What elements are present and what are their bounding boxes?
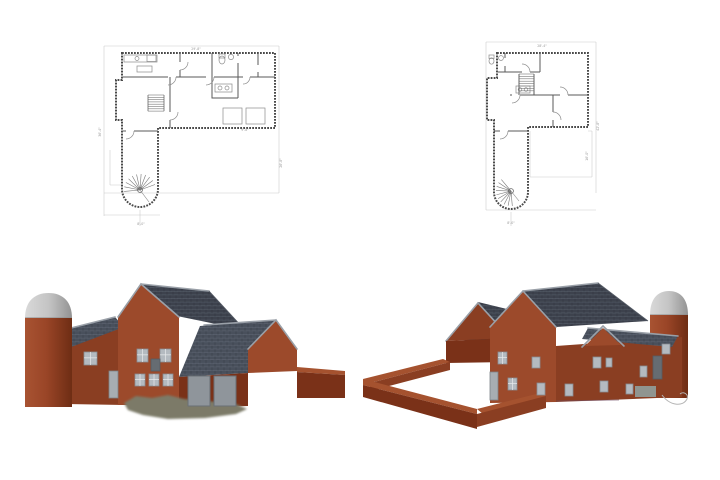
bathroom-fixtures [215, 54, 234, 92]
window [600, 381, 608, 392]
dimension-label: 26'-8" [279, 158, 283, 168]
window [626, 384, 633, 394]
cad-sheet: 29'-8"36'-4"26'-8"8'-0"9'-8" 28'-4"42'-8… [0, 0, 720, 480]
door [109, 371, 118, 398]
stoop [635, 386, 656, 397]
viewport-first-floor-plan[interactable]: 29'-8"36'-4"26'-8"8'-0"9'-8" [98, 46, 283, 226]
dimension-label: 8'-0" [137, 222, 145, 226]
deck-squares [223, 108, 265, 124]
window [640, 366, 647, 377]
dimension-label: 28'-4" [537, 44, 547, 48]
silo-body [25, 318, 72, 407]
stair-treads [519, 74, 534, 91]
dimension-label: 36'-4" [98, 127, 102, 137]
viewport-render-front-left[interactable] [25, 284, 345, 419]
construction-lines [104, 46, 279, 226]
drawing-canvas: 29'-8"36'-4"26'-8"8'-0"9'-8" 28'-4"42'-8… [0, 0, 720, 480]
recessed-window [653, 356, 662, 379]
garden-wall-front [297, 372, 345, 398]
door [490, 372, 498, 400]
recessed-window [151, 359, 160, 371]
window [593, 357, 601, 368]
viewport-render-back-right[interactable] [363, 283, 688, 429]
window [565, 384, 573, 396]
dimension-label: 42'-8" [596, 121, 600, 131]
window [537, 383, 545, 395]
exterior-walls [487, 53, 588, 209]
stair-treads [148, 95, 164, 111]
window [532, 357, 540, 368]
kitchen-fixtures [124, 55, 157, 72]
garage-door [214, 376, 236, 406]
interior-walls [494, 53, 588, 131]
spiral-arrow [140, 190, 149, 202]
silo-dome [25, 293, 72, 318]
dimension-labels: 28'-4"42'-8"16'-0"8'-0" [507, 44, 600, 225]
construction-lines [486, 42, 596, 226]
spiral-stair [124, 174, 155, 202]
spiral-stair [496, 180, 519, 206]
dimension-label: 9'-8" [241, 128, 249, 132]
window [662, 344, 670, 354]
garage-door [188, 376, 210, 406]
interior-walls [122, 53, 275, 131]
window [606, 358, 612, 367]
spiral-arrow [511, 191, 519, 201]
dimension-label: 8'-0" [507, 221, 515, 225]
viewport-second-floor-plan[interactable]: 28'-4"42'-8"16'-0"8'-0" [486, 42, 600, 226]
silo-dome [650, 291, 688, 315]
dimension-label: 16'-0" [585, 151, 589, 161]
exterior-walls [116, 53, 275, 207]
dimension-label: 29'-8" [191, 47, 201, 51]
